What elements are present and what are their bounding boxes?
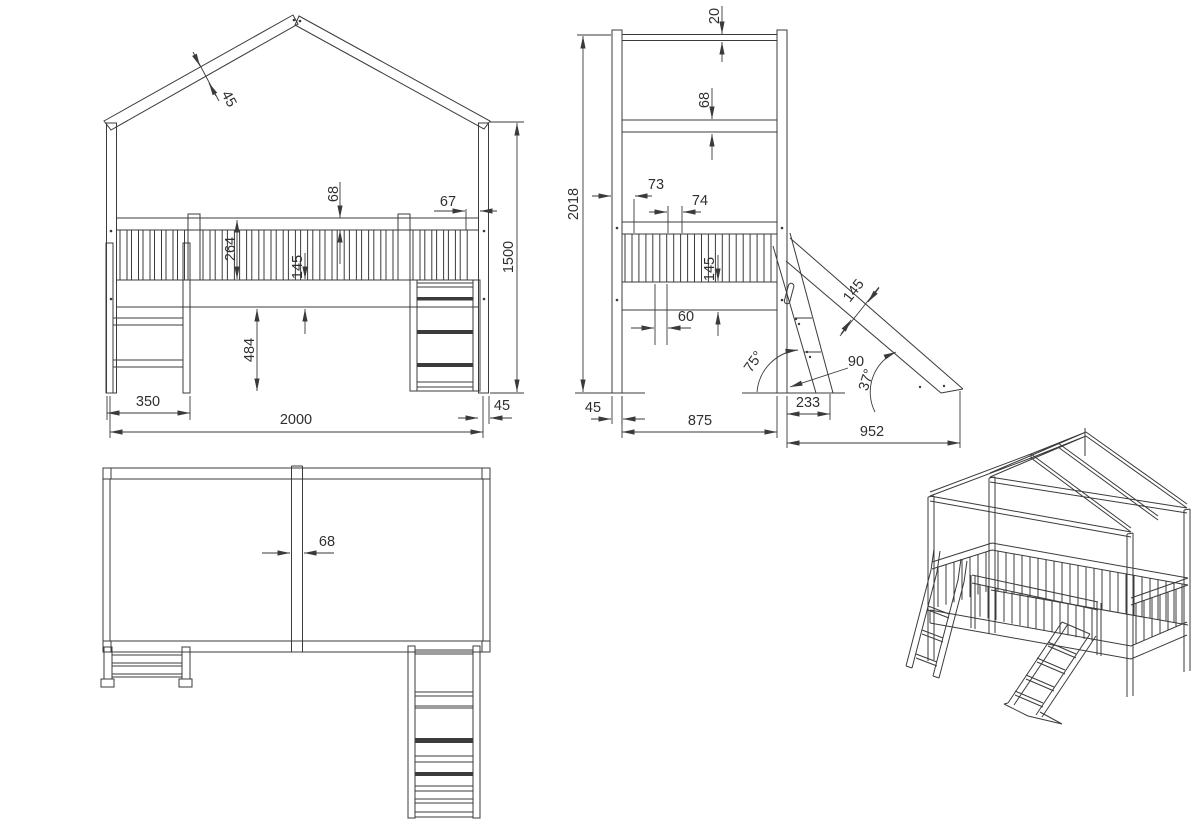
eave-rail [622,120,777,132]
iso-left-slats [938,552,986,607]
iso-bed-frame [930,590,1188,659]
dim-front-guardrail: 264 [223,237,239,261]
side-dimensions: 20 68 2018 73 74 145 [566,6,960,448]
iso-view [906,428,1190,724]
ladder-side [773,233,833,393]
dim-side-ladder-angle: 75° [741,348,767,375]
plan-dimensions: 68 [262,534,335,553]
dim-front-rail-inset: 67 [440,194,456,210]
dim-front-roof-board: 45 [218,88,240,110]
iso-back-slats [998,551,1182,624]
dim-side-slide-board: 145 [840,277,868,306]
dim-front-clearance: 484 [242,338,258,362]
dim-side-post-slat-gap: 73 [648,177,664,193]
dim-front-top-rail: 68 [326,186,342,202]
iso-roof-frame [930,428,1187,537]
slide-step-1 [417,297,473,301]
dim-side-ladder-run: 233 [796,395,820,411]
dim-plan-center-rail: 68 [319,534,335,550]
plan-ladder [101,647,192,687]
iso-right-slats [1136,587,1184,644]
front-dimensions: 45 68 67 264 145 484 1500 [107,52,524,438]
plan-slide-step-2 [415,772,473,776]
dim-front-length: 2000 [280,412,312,428]
slide-step-3 [417,363,473,367]
side-back-post [777,30,787,393]
slide-front-projection [410,280,480,391]
front-view: 45 68 67 264 145 484 1500 [104,15,524,438]
dim-side-depth: 875 [688,413,712,429]
dim-side-slat-pitch: 74 [692,193,708,209]
side-frame-board [622,282,777,310]
plan-view: 68 [101,466,490,818]
side-guardrail-rail [622,222,777,234]
dim-side-ridge-beam: 20 [707,8,723,24]
roof-right-board [295,16,490,129]
technical-drawing-page: 45 68 67 264 145 484 1500 [0,0,1200,838]
dim-front-frame-board: 145 [290,255,306,279]
side-guardrail-slats [625,234,771,282]
iso-posts [928,477,1190,697]
dim-front-eave-height: 1500 [501,241,517,273]
plan-slide-step-1 [415,738,473,743]
dim-side-slide-angle: 37° [856,367,878,393]
iso-guard-slats [980,585,1092,641]
dim-front-post: 45 [494,398,510,414]
drawing-canvas: 45 68 67 264 145 484 1500 [0,0,1200,838]
newel-post-right [398,214,410,280]
dim-side-eave-rail: 68 [697,92,713,108]
dim-side-slide-run: 952 [860,424,884,440]
plan-corner-posts [103,468,490,652]
side-screw-dots [616,227,946,388]
iso-ladder [906,549,967,678]
bed-frame-board [117,280,479,307]
left-post [107,123,117,393]
side-view: 20 68 2018 73 74 145 [566,6,963,448]
plan-center-rail [292,466,303,652]
plan-slide [408,646,480,818]
dim-side-frame-board: 145 [702,257,718,281]
slide-step-2 [417,330,473,334]
dim-side-slat-width: 60 [678,309,694,325]
plan-outline [103,468,490,652]
dim-side-total-height: 2018 [566,188,582,220]
dim-side-post: 45 [585,400,601,416]
roof-left-board [104,15,298,130]
guardrail-top-rail [117,218,479,230]
side-front-post [612,30,622,393]
dim-front-ladder-span: 350 [136,394,160,410]
ridge-beam [622,35,777,41]
